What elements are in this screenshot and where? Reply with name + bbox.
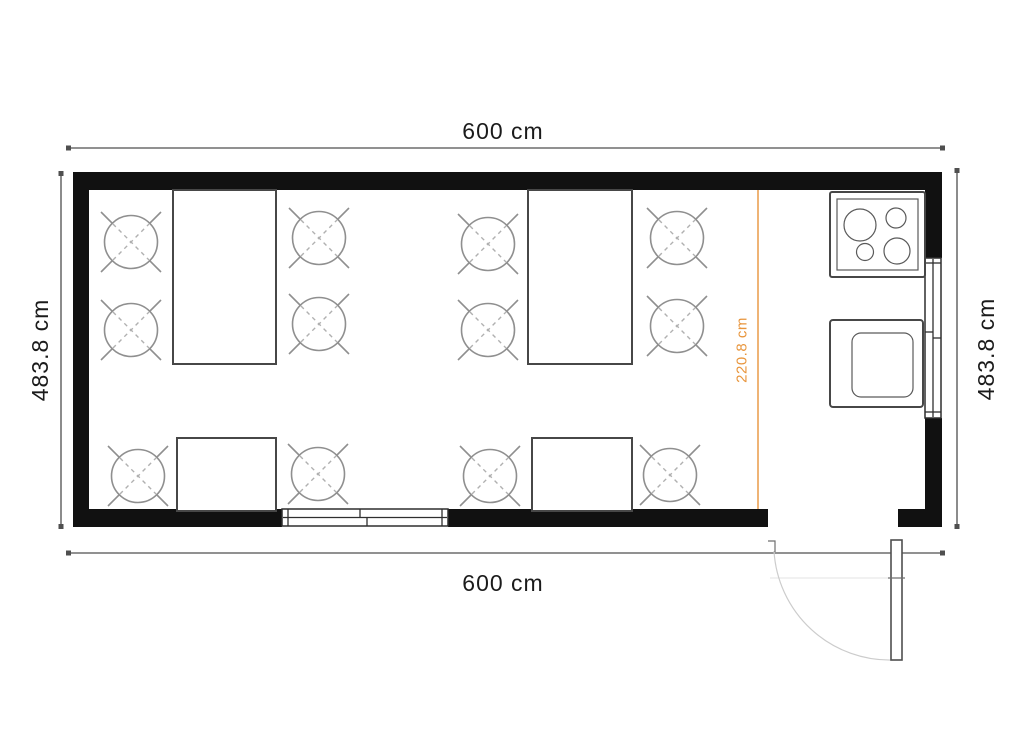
chair — [101, 212, 161, 272]
dimension-right: 483.8 cm — [955, 168, 1000, 529]
table-large-1 — [173, 190, 276, 364]
dimension-bottom-label: 600 cm — [462, 570, 543, 596]
dimension-bottom: 600 cm — [66, 551, 945, 597]
wall-left — [73, 172, 89, 527]
wall-top — [73, 172, 942, 190]
chair — [640, 445, 700, 505]
table-small-2 — [532, 438, 632, 511]
floor-plan-canvas: 600 cm 600 cm 483.8 cm 483.8 cm 220.8 cm — [0, 0, 1024, 742]
dimension-left: 483.8 cm — [27, 171, 64, 529]
chair — [288, 444, 348, 504]
chair — [458, 300, 518, 360]
window-bottom — [282, 509, 448, 526]
chair — [289, 294, 349, 354]
chair — [460, 446, 520, 506]
floor-plan-svg: 600 cm 600 cm 483.8 cm 483.8 cm 220.8 cm — [0, 0, 1024, 742]
door-leaf — [891, 540, 902, 660]
table-small-1 — [177, 438, 276, 511]
dimension-left-label: 483.8 cm — [27, 299, 53, 402]
dimension-top-label: 600 cm — [462, 118, 543, 144]
chair — [647, 296, 707, 356]
door — [768, 540, 905, 660]
dimension-kitchen-depth-label: 220.8 cm — [734, 317, 751, 383]
wall-right-top — [925, 172, 942, 258]
dimension-right-label: 483.8 cm — [973, 298, 999, 401]
oven — [830, 320, 923, 407]
wall-right-bottom — [925, 418, 942, 527]
chair — [647, 208, 707, 268]
door-jamb-tick — [768, 541, 775, 552]
chair — [101, 300, 161, 360]
chair — [458, 214, 518, 274]
window-right — [925, 258, 941, 418]
dimension-kitchen-depth: 220.8 cm — [734, 190, 759, 509]
chair — [289, 208, 349, 268]
dimension-top: 600 cm — [66, 118, 945, 151]
tables — [173, 190, 632, 511]
table-large-2 — [528, 190, 632, 364]
cooktop — [830, 192, 925, 277]
chair — [108, 446, 168, 506]
